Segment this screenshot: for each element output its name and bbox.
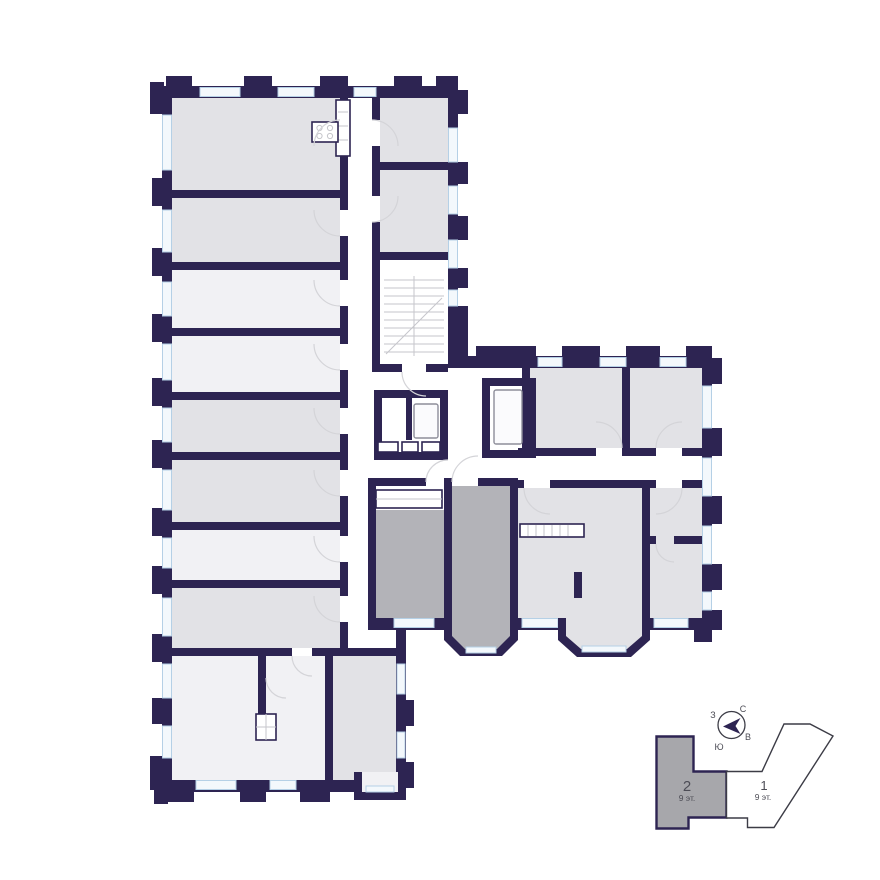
- keyplan-section-1[interactable]: [727, 724, 834, 828]
- compass-north-label: С: [740, 704, 747, 714]
- room: [172, 198, 340, 262]
- room: [380, 170, 448, 252]
- compass-south-label: Ю: [714, 742, 723, 752]
- room: [172, 656, 325, 780]
- room: [172, 270, 340, 328]
- room: [172, 530, 340, 580]
- room: [172, 98, 340, 190]
- compass-east-label: В: [745, 732, 751, 742]
- floor-plan-svg: З С В Ю 2 9 эт. 1 9 эт.: [0, 0, 880, 880]
- room: [172, 336, 340, 392]
- room: [518, 488, 642, 618]
- room: [380, 98, 448, 162]
- keyplan-section-1-number: 1: [760, 778, 767, 793]
- elevator-car-1: [414, 404, 438, 438]
- room: [172, 460, 340, 522]
- room: [333, 656, 396, 780]
- floor-plan-viewer: З С В Ю 2 9 эт. 1 9 эт.: [0, 0, 880, 880]
- elevator-car-2: [494, 390, 522, 444]
- selected-apartment-room-1[interactable]: [376, 510, 444, 618]
- room: [630, 368, 702, 448]
- compass-west-label: З: [710, 710, 715, 720]
- selected-apartment-bay[interactable]: [452, 618, 510, 649]
- room: [172, 588, 340, 648]
- selected-apartment-room-2[interactable]: [452, 486, 510, 618]
- keyplan-section-1-floors: 9 эт.: [755, 792, 772, 802]
- keyplan-section-2-floors: 9 эт.: [679, 793, 696, 803]
- room: [530, 368, 622, 448]
- room: [172, 400, 340, 452]
- compass: З С В Ю: [710, 704, 751, 752]
